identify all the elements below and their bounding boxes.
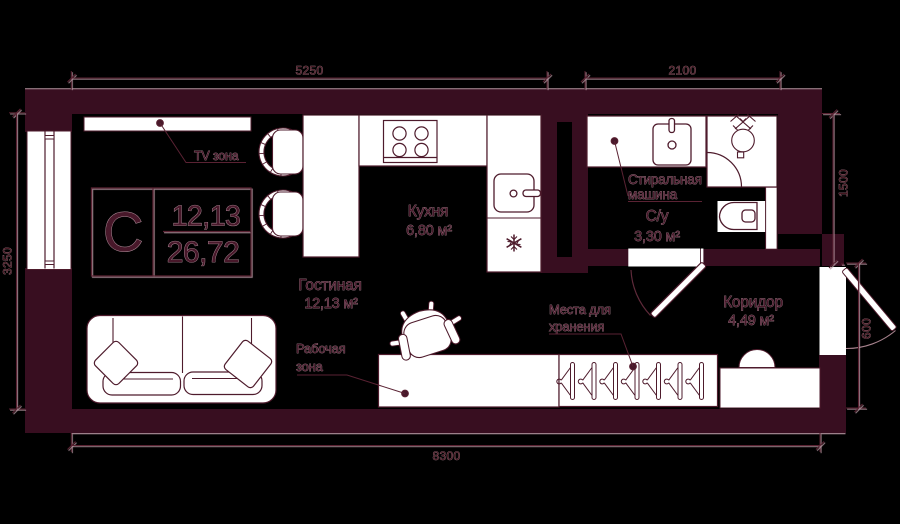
svg-text:С/у: С/у: [646, 208, 669, 225]
svg-text:8300: 8300: [433, 449, 461, 463]
svg-text:Гостиная: Гостиная: [298, 277, 361, 294]
svg-text:3,30 м²: 3,30 м²: [634, 229, 680, 245]
svg-text:TV зона: TV зона: [194, 149, 239, 163]
svg-text:зона: зона: [296, 359, 324, 374]
svg-text:26,72: 26,72: [167, 236, 240, 269]
svg-text:2100: 2100: [669, 64, 697, 78]
svg-text:12,13: 12,13: [172, 201, 241, 233]
svg-text:600: 600: [860, 318, 874, 339]
svg-text:6,80 м²: 6,80 м²: [406, 223, 452, 239]
svg-text:4,49 м²: 4,49 м²: [728, 313, 774, 329]
svg-text:12,13 м²: 12,13 м²: [304, 296, 358, 312]
svg-text:Кухня: Кухня: [408, 203, 448, 220]
svg-text:3250: 3250: [1, 247, 15, 275]
svg-text:Места для: Места для: [549, 302, 611, 317]
svg-text:хранения: хранения: [549, 319, 604, 334]
svg-text:Стиральная: Стиральная: [628, 172, 702, 187]
svg-text:машина: машина: [628, 187, 678, 202]
svg-text:Рабочая: Рабочая: [296, 341, 346, 356]
svg-text:Коридор: Коридор: [723, 294, 783, 311]
svg-text:5250: 5250: [296, 64, 324, 78]
svg-text:С: С: [103, 200, 143, 263]
svg-text:1500: 1500: [837, 169, 851, 197]
